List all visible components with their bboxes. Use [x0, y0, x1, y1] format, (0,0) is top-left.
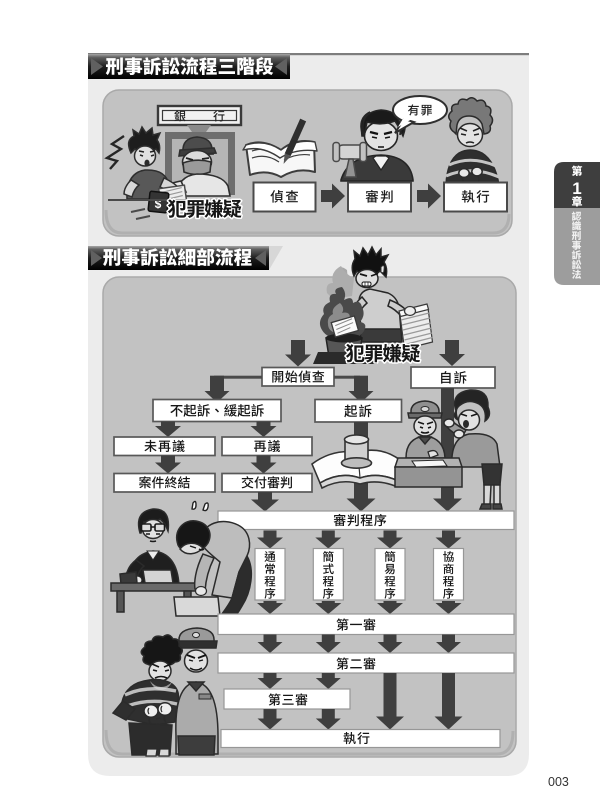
- svg-text:1: 1: [572, 179, 581, 198]
- svg-text:003: 003: [548, 775, 569, 789]
